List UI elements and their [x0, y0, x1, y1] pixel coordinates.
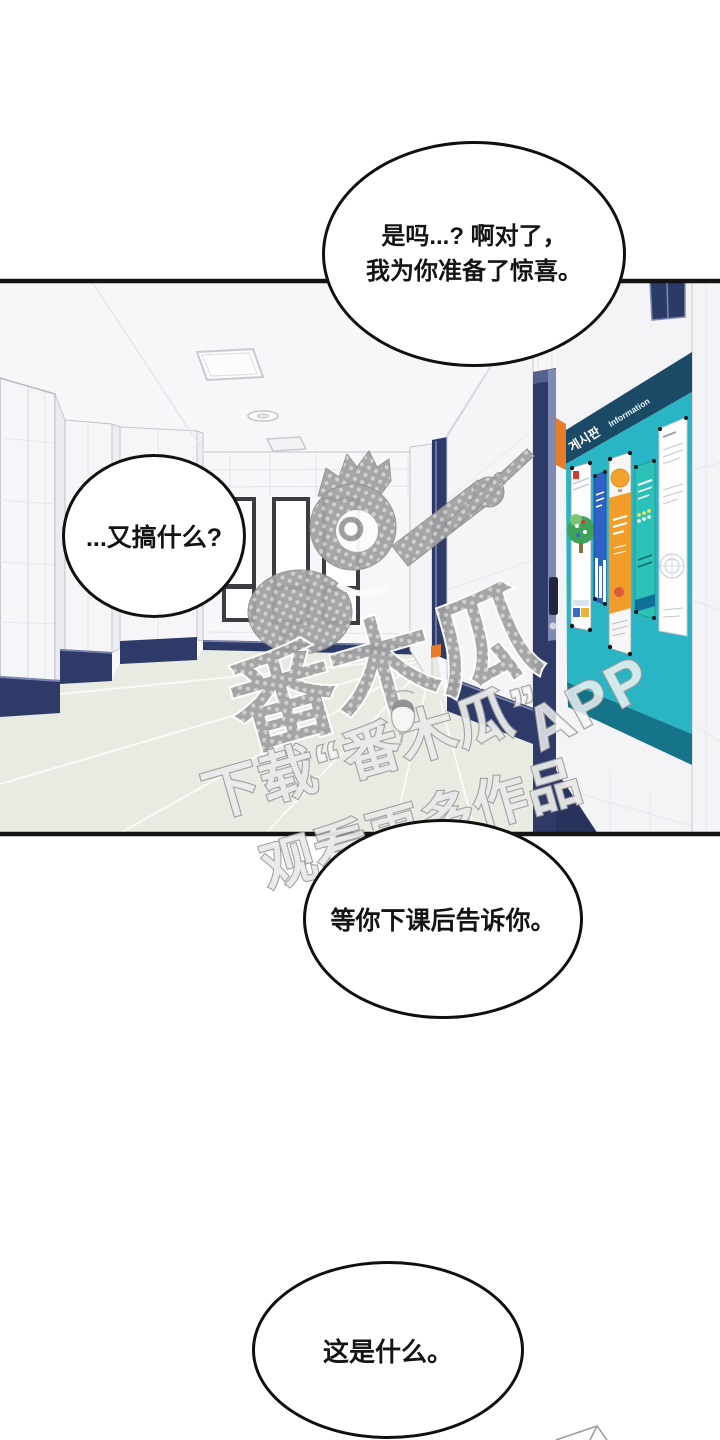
comic-page: 게시판 Information: [0, 0, 720, 1440]
poster-orange: [608, 451, 632, 656]
ceiling-vent: [267, 437, 306, 451]
speech-text: 这是什么。: [323, 1332, 453, 1369]
speech-bubble-top: 是吗...? 啊对了， 我为你准备了惊喜。: [322, 141, 626, 367]
poster-teal: [634, 459, 656, 620]
board-side-stripe: [556, 418, 566, 470]
smoke-detector: [248, 411, 278, 421]
speech-bubble-middle: 等你下课后告诉你。: [303, 819, 583, 1019]
transom-window: [650, 281, 685, 320]
baseboard: [120, 637, 197, 664]
poster-blue: [593, 470, 607, 606]
door-keyhole: [550, 623, 557, 630]
ceiling-light: [197, 349, 263, 380]
speech-text: 是吗...? 啊对了，: [381, 219, 566, 254]
baseboard: [60, 649, 112, 684]
baseboard: [0, 676, 60, 717]
speech-bubble-bottom: 这是什么。: [252, 1261, 524, 1439]
next-panel-box-lines: [556, 1426, 607, 1440]
speech-text: ...又搞什么?: [86, 518, 222, 554]
speech-bubble-left: ...又搞什么?: [62, 454, 246, 618]
speech-text: 我为你准备了惊喜。: [366, 254, 582, 289]
poster-white-notice: [658, 416, 688, 636]
poster-green: [567, 461, 595, 632]
speech-text: 等你下课后告诉你。: [330, 901, 555, 937]
door-handle: [549, 577, 558, 615]
